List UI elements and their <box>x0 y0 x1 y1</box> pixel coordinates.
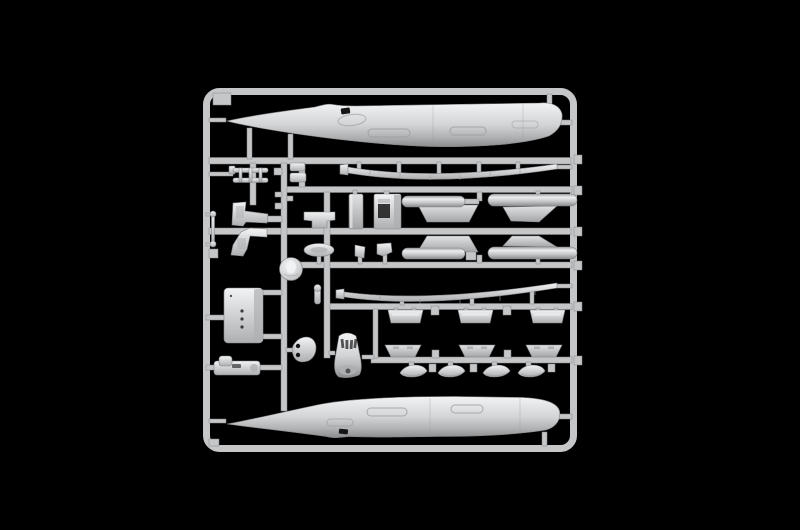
part-flap-segment-1 <box>388 310 423 323</box>
part-canoe-blister <box>304 244 334 257</box>
frame-corner-tab <box>213 93 231 105</box>
part-wheel-disc <box>280 258 303 281</box>
sprue-photo: photograph <box>0 0 800 530</box>
part-wedge-bracket-1 <box>355 245 365 258</box>
part-access-door <box>224 288 263 343</box>
part-small-pin <box>314 285 321 305</box>
part-slat-segment-1 <box>385 345 421 357</box>
photo-stage: photograph <box>0 0 800 530</box>
part-slat-segment-3 <box>526 345 562 357</box>
part-slat-segment-2 <box>459 345 495 357</box>
part-intake-cowling <box>335 333 362 378</box>
part-bulkhead-panel <box>349 194 363 229</box>
part-flap-segment-2 <box>458 310 493 323</box>
part-equipment-box <box>374 194 401 229</box>
part-flap-segment-3 <box>530 310 565 323</box>
